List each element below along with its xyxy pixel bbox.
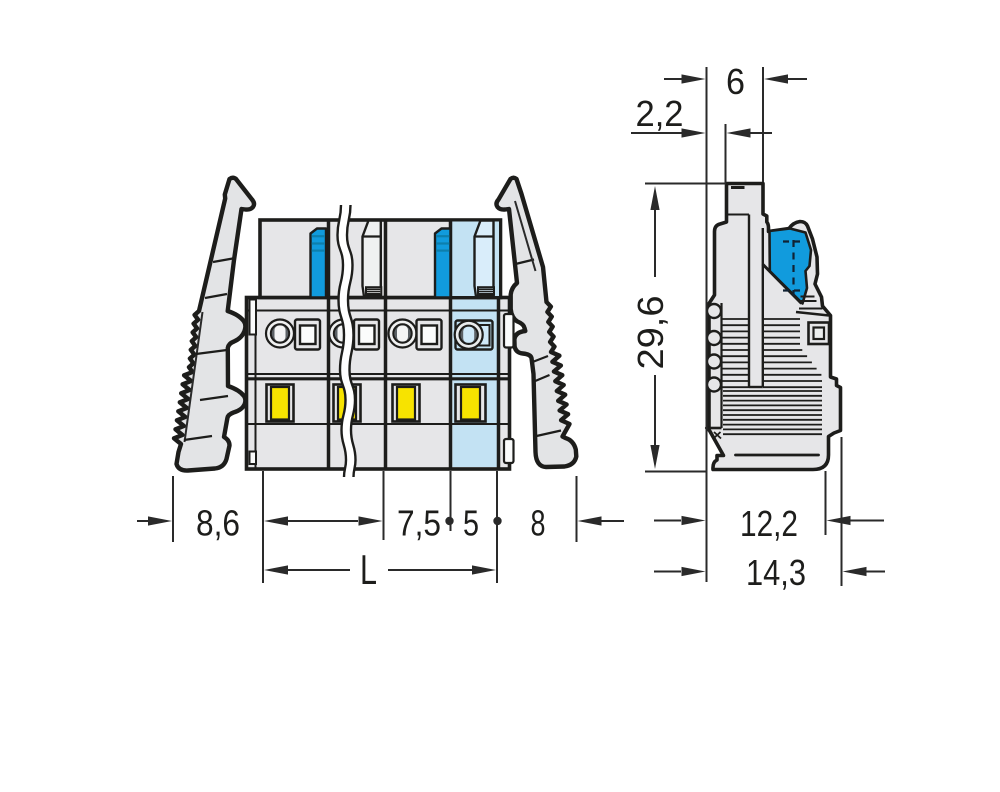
svg-text:5: 5 — [463, 503, 479, 544]
svg-text:8,6: 8,6 — [196, 503, 240, 544]
svg-text:29,6: 29,6 — [630, 296, 671, 370]
svg-text:8: 8 — [531, 503, 546, 544]
svg-text:2,2: 2,2 — [636, 93, 684, 134]
svg-text:12,2: 12,2 — [740, 503, 798, 544]
svg-text:6: 6 — [726, 61, 745, 102]
svg-text:7,5: 7,5 — [397, 503, 441, 544]
svg-text:L: L — [360, 546, 377, 593]
svg-text:14,3: 14,3 — [746, 552, 806, 593]
